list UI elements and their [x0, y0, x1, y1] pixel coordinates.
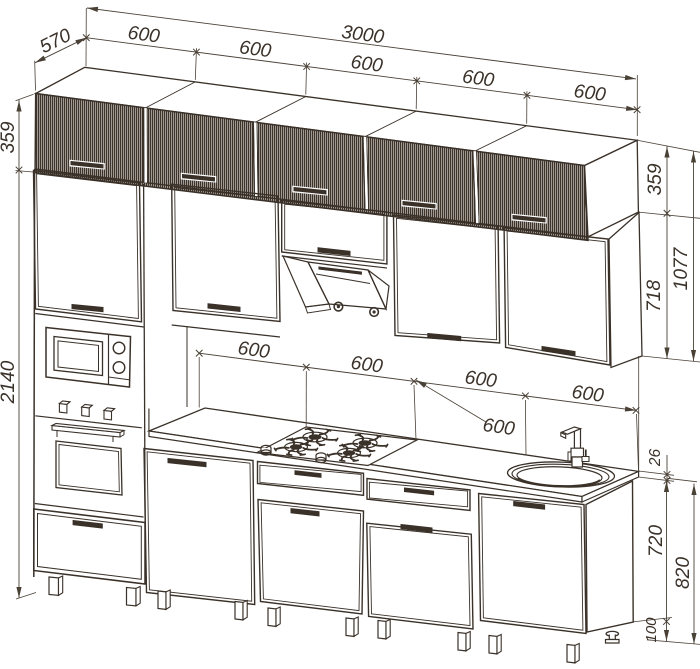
- svg-text:600: 600: [570, 382, 605, 407]
- svg-text:600: 600: [461, 66, 496, 91]
- svg-text:600: 600: [349, 52, 384, 77]
- svg-text:600: 600: [236, 338, 271, 363]
- svg-text:600: 600: [238, 37, 273, 62]
- svg-text:600: 600: [481, 415, 516, 440]
- svg-text:600: 600: [463, 367, 498, 392]
- svg-text:359: 359: [645, 163, 666, 195]
- svg-text:2140: 2140: [0, 360, 19, 404]
- svg-text:600: 600: [126, 23, 161, 48]
- svg-text:26: 26: [647, 449, 664, 468]
- svg-text:359: 359: [0, 121, 19, 153]
- svg-text:100: 100: [643, 617, 660, 643]
- svg-text:600: 600: [572, 81, 607, 106]
- svg-text:600: 600: [349, 353, 384, 378]
- svg-text:1077: 1077: [671, 246, 692, 290]
- svg-text:720: 720: [646, 525, 667, 557]
- svg-text:718: 718: [644, 280, 665, 312]
- svg-text:820: 820: [673, 557, 694, 589]
